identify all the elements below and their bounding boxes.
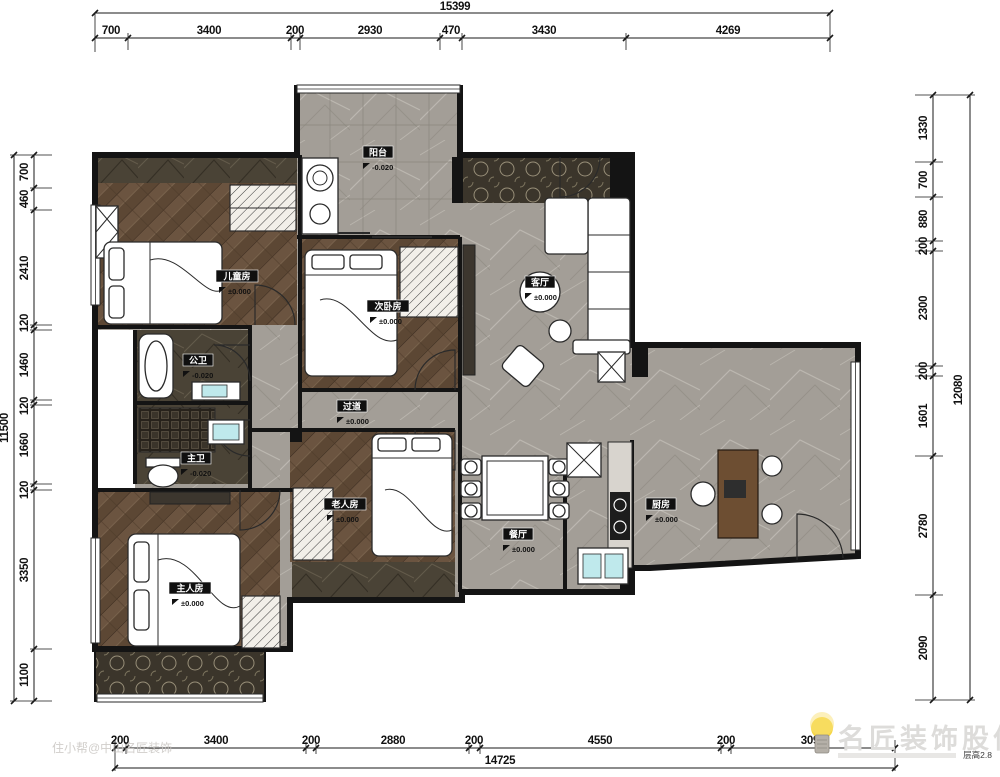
dim-right-seg: 1330	[918, 116, 930, 140]
svg-text:±0.000: ±0.000	[336, 515, 359, 524]
svg-text:客厅: 客厅	[530, 277, 549, 288]
svg-text:老人房: 老人房	[330, 499, 358, 510]
floor-plan-page: 阳台 -0.020 儿童房 ±0.000 次卧房 ±0.000 客厅 ±0.00…	[0, 0, 1000, 777]
dim-right-seg: 880	[918, 210, 930, 228]
dim-right-seg: 2090	[918, 636, 930, 660]
dim-left-total: 11500	[0, 413, 11, 443]
dim-right-seg: 700	[918, 171, 930, 189]
bed-elder	[372, 434, 452, 556]
tv-cabinet	[463, 245, 475, 375]
washer-and-sink	[302, 158, 338, 234]
bathtub	[139, 334, 173, 398]
watermark-bottom-left: 住小帮@中山名匠装饰	[52, 740, 172, 755]
dim-right-seg: 2780	[918, 514, 930, 538]
dim-right: 12080 1330 700 880 200 2300 200 1601 278…	[915, 92, 975, 703]
dim-top-seg: 700	[102, 25, 120, 37]
svg-text:±0.000: ±0.000	[655, 515, 678, 524]
dim-left: 11500 700 460 2410 120 1460 120 1660 120…	[0, 152, 52, 704]
stool	[762, 504, 782, 524]
dim-top-seg: 3400	[197, 25, 221, 37]
svg-text:±0.000: ±0.000	[346, 417, 369, 426]
window-lower-balcony	[97, 694, 263, 702]
tv-cabinet-master	[150, 492, 230, 504]
svg-text:±0.000: ±0.000	[181, 599, 204, 608]
dim-top-seg: 3430	[532, 25, 556, 37]
dim-right-seg: 2300	[918, 296, 930, 320]
wardrobe-master	[242, 596, 280, 648]
svg-text:主人房: 主人房	[176, 583, 203, 594]
dim-left-seg: 3350	[19, 558, 31, 582]
bed-second	[305, 250, 397, 376]
dim-left-seg: 1660	[19, 433, 31, 457]
floor-height-note: 层高2.8	[963, 750, 992, 760]
svg-text:±0.000: ±0.000	[512, 545, 535, 554]
wardrobe-kids	[230, 185, 296, 231]
dim-top-seg: 4269	[716, 25, 740, 37]
svg-text:阳台: 阳台	[369, 147, 387, 158]
watermarks: 住小帮@中山名匠装饰 名匠装饰股份 层高2.8	[52, 712, 1000, 760]
dim-right-seg: 1601	[918, 403, 930, 428]
dim-bottom: 14725 200 3400 200 2880 200 4550 200 309…	[111, 735, 898, 771]
dining-table	[461, 456, 569, 520]
svg-text:主卫: 主卫	[187, 453, 205, 464]
dim-left-seg: 700	[19, 163, 31, 181]
brand-subline-bar	[838, 753, 956, 758]
dim-right-seg: 200	[918, 362, 930, 380]
svg-text:-0.020: -0.020	[372, 163, 393, 172]
dim-left-seg: 120	[19, 314, 31, 332]
dim-left-seg: 460	[19, 190, 31, 208]
dim-left-seg: 2410	[19, 256, 31, 280]
dim-bottom-seg: 2880	[381, 735, 405, 747]
dim-top-seg: 2930	[358, 25, 382, 37]
window-master-bedroom	[91, 538, 100, 643]
window-balcony-top	[297, 85, 460, 93]
vanity-master	[208, 420, 244, 444]
dim-left-seg: 1460	[19, 353, 31, 377]
vanity-guest	[192, 382, 240, 400]
side-table	[549, 320, 571, 342]
svg-text:-0.020: -0.020	[190, 469, 211, 478]
dim-right-seg: 200	[918, 237, 930, 255]
dim-top-total: 15399	[440, 1, 470, 13]
shower	[139, 408, 215, 452]
dim-right-total: 12080	[953, 375, 965, 405]
stool	[762, 456, 782, 476]
svg-text:厨房: 厨房	[652, 499, 670, 510]
toilet	[146, 458, 180, 487]
svg-text:次卧房: 次卧房	[374, 301, 401, 312]
floor-plan-canvas: 阳台 -0.020 儿童房 ±0.000 次卧房 ±0.000 客厅 ±0.00…	[0, 0, 1000, 777]
svg-text:±0.000: ±0.000	[534, 293, 557, 302]
dim-top-seg: 470	[442, 25, 460, 37]
dim-bottom-seg: 200	[717, 735, 735, 747]
dim-bottom-seg: 200	[465, 735, 483, 747]
svg-text:过道: 过道	[343, 401, 361, 412]
svg-text:±0.000: ±0.000	[228, 287, 251, 296]
svg-text:±0.000: ±0.000	[379, 317, 402, 326]
svg-text:公卫: 公卫	[189, 356, 207, 366]
dim-top-seg: 200	[286, 25, 304, 37]
dim-left-seg: 1100	[19, 663, 31, 687]
svg-text:儿童房: 儿童房	[222, 271, 250, 282]
dim-left-seg: 120	[19, 397, 31, 415]
dim-bottom-seg: 3400	[204, 735, 228, 747]
svg-text:餐厅: 餐厅	[508, 529, 527, 540]
dim-bottom-seg: 4550	[588, 735, 612, 747]
dim-top: 15399 700 3400 200 2930 470 3430 4269	[92, 1, 833, 52]
desk-chair	[691, 482, 715, 506]
window-study-wing	[851, 362, 860, 550]
dim-left-seg: 120	[19, 481, 31, 499]
svg-text:-0.020: -0.020	[192, 371, 213, 380]
bed-kids	[104, 242, 222, 324]
dim-bottom-total: 14725	[485, 755, 516, 767]
dim-bottom-seg: 200	[302, 735, 320, 747]
